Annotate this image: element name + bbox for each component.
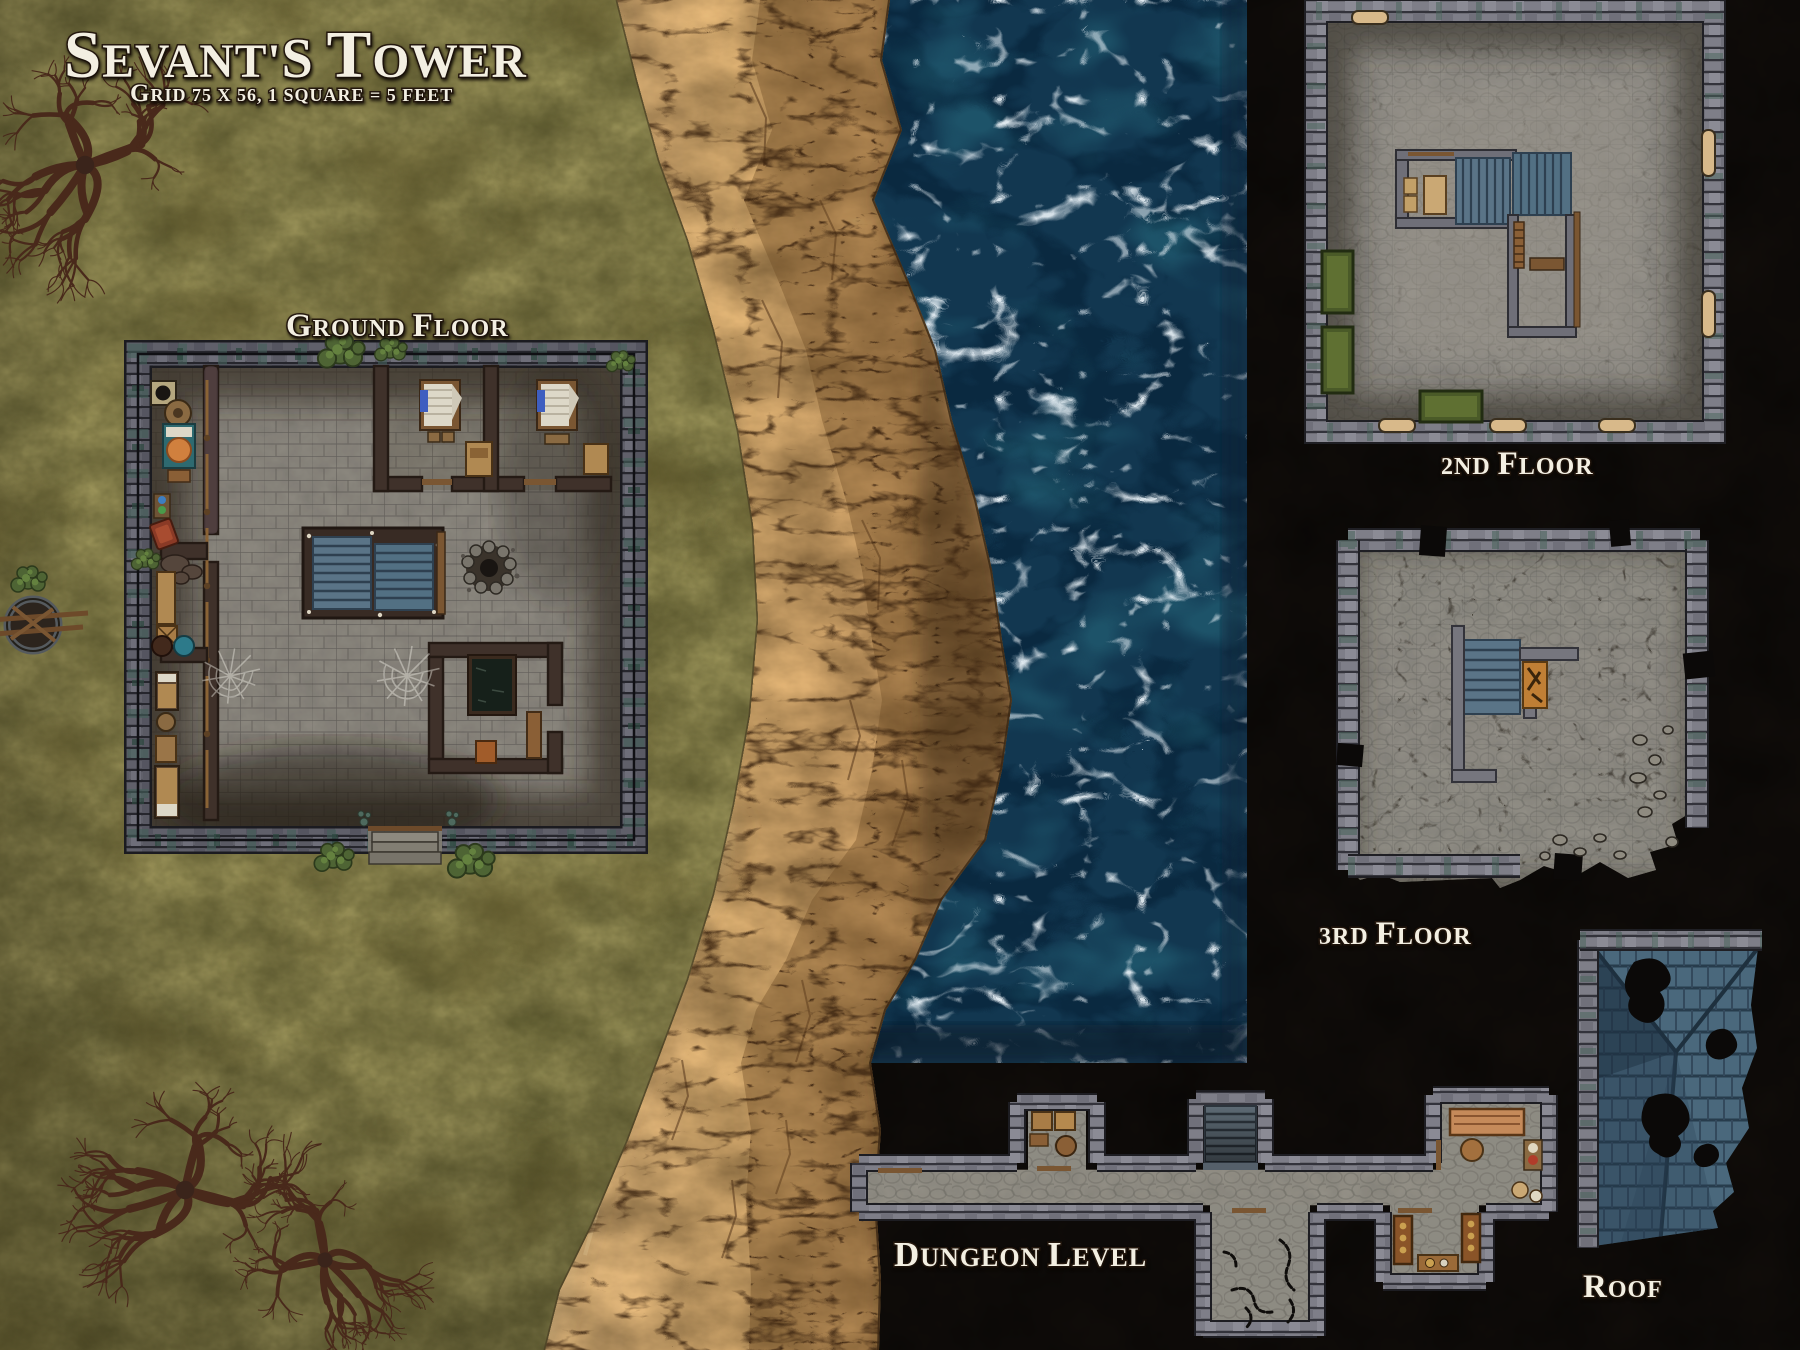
svg-text:GRID 75 X 56, 1 SQUARE = 5 FEE: GRID 75 X 56, 1 SQUARE = 5 FEET <box>130 80 453 107</box>
